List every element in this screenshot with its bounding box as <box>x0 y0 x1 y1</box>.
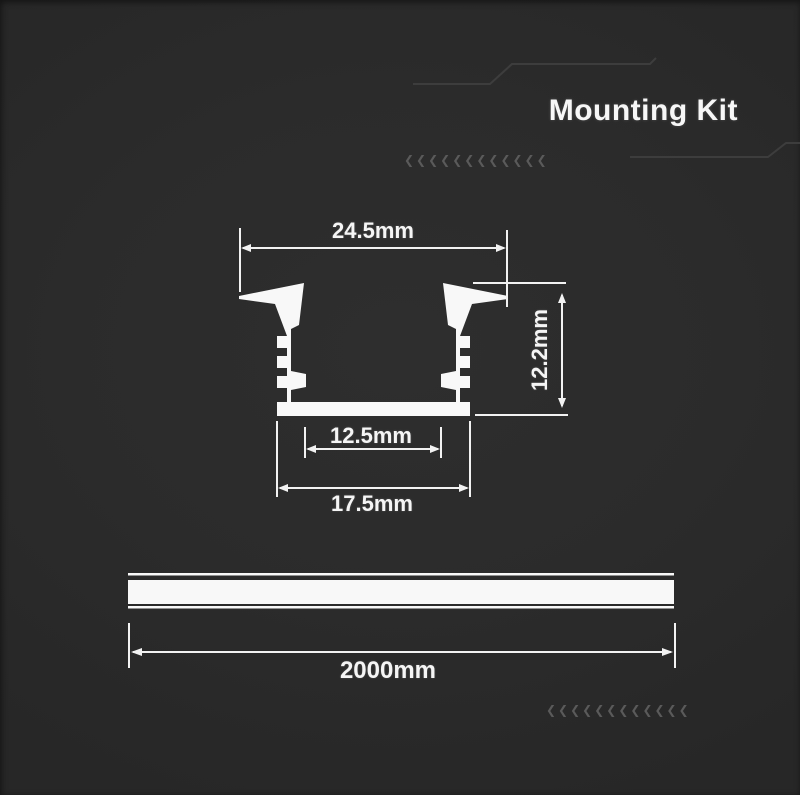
profile-bar-shape <box>128 573 674 609</box>
label-top-width: 24.5mm <box>293 218 453 244</box>
profile-cross-section-shape <box>239 283 508 416</box>
label-length: 2000mm <box>313 657 463 685</box>
chevrons-top-icon: ❮❮❮❮❮❮❮❮❮❮❮❮ <box>404 153 549 167</box>
label-height: 12.2mm <box>527 305 555 395</box>
chevrons-bottom-icon: ❮❮❮❮❮❮❮❮❮❮❮❮ <box>546 703 691 717</box>
product-diagram-page: Mounting Kit 24.5mm 12.2mm 12.5mm 17.5mm… <box>0 0 800 795</box>
page-title: Mounting Kit <box>549 94 738 128</box>
label-inner-width: 12.5mm <box>291 423 451 449</box>
label-base-width: 17.5mm <box>292 491 452 517</box>
